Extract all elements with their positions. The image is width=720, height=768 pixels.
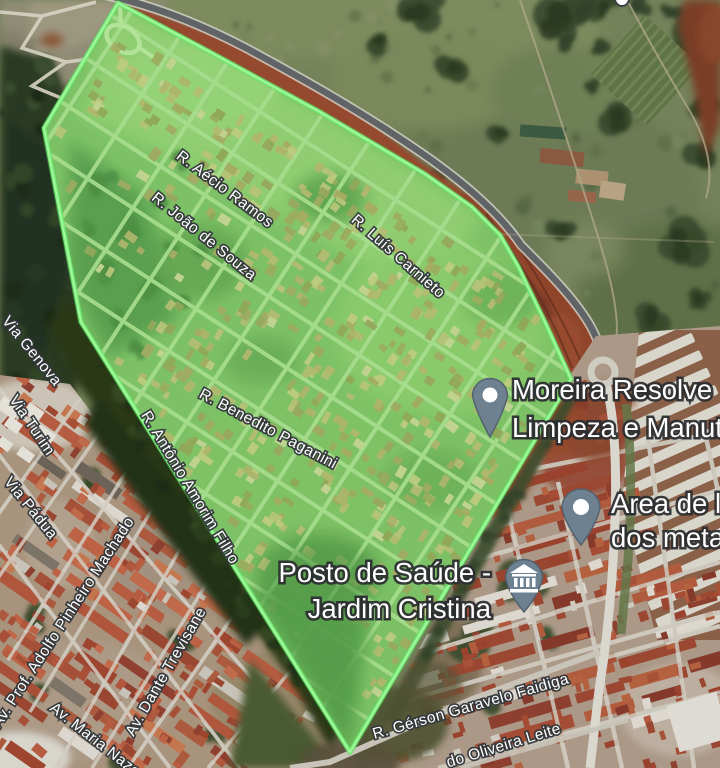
svg-text:Jardim Cristina: Jardim Cristina bbox=[308, 593, 492, 624]
svg-text:Posto de Saúde -: Posto de Saúde - bbox=[278, 557, 491, 588]
svg-text:Limpeza e Manut: Limpeza e Manut bbox=[512, 412, 720, 443]
svg-text:Area de lav: Area de lav bbox=[611, 488, 720, 519]
svg-text:dos metais: dos metais bbox=[611, 522, 720, 553]
svg-text:Moreira Resolve: Moreira Resolve bbox=[512, 374, 712, 405]
